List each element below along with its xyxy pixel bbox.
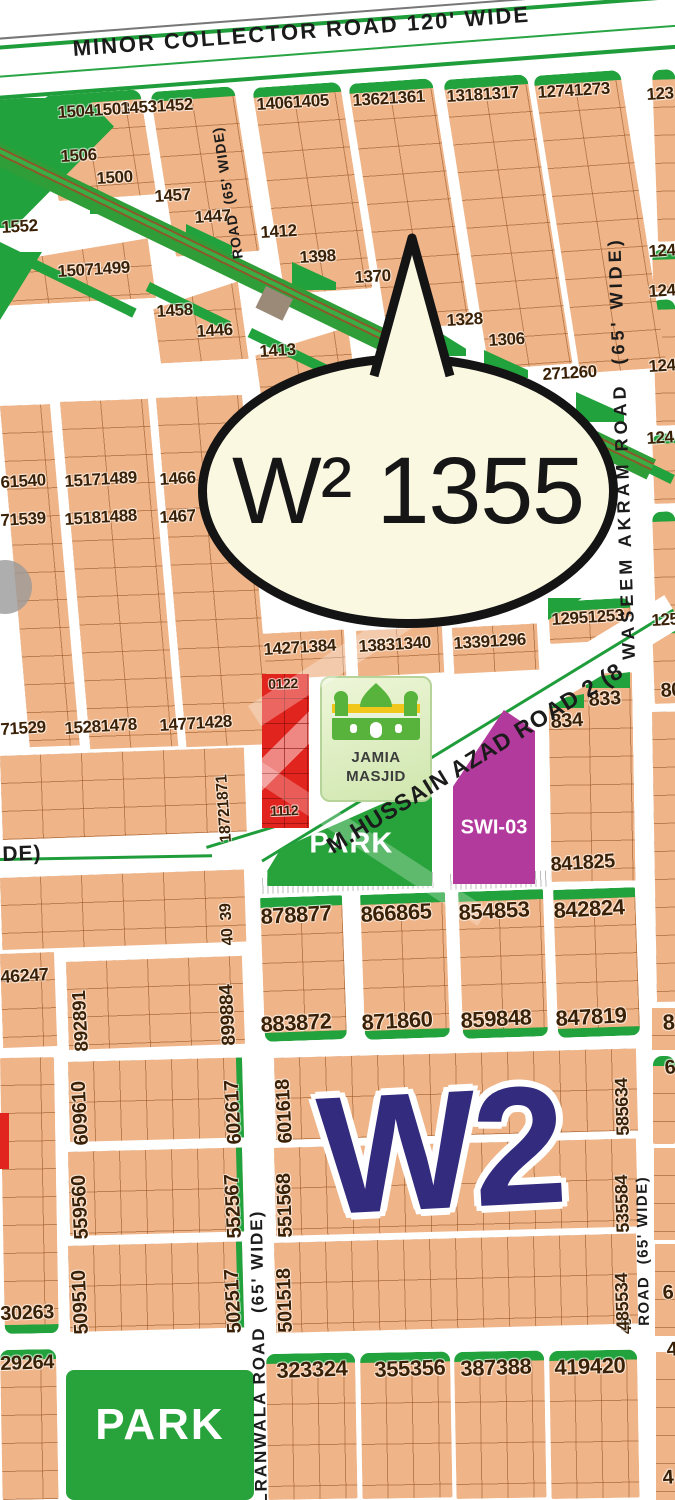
plot-number-label: 125 <box>651 610 675 629</box>
plot-number-label: 601618 <box>273 1079 296 1144</box>
plot-number-label: 1466 <box>159 469 196 488</box>
gujranwala-road-label: LRANWALA ROAD (65' WIDE) <box>248 1210 270 1500</box>
plot-number-label: 1413 <box>259 341 296 360</box>
plot-number-label: 124 <box>648 356 675 375</box>
plot-number-label: 502517 <box>222 1269 245 1334</box>
plot-number-label: 4 <box>662 1467 674 1488</box>
plot-number-label: 13621361 <box>352 88 425 109</box>
plot-number-label: 1500 <box>96 168 133 187</box>
plot-number-label: 585634 <box>612 1078 632 1136</box>
red-strip-partial <box>0 1113 9 1169</box>
society-map: MINOR COLLECTOR ROAD 120' WIDE ROAD (65'… <box>0 0 675 1500</box>
plot-number-label: 0122 <box>268 676 298 691</box>
mosque-icon <box>326 682 426 744</box>
plot-number-label: 552567 <box>222 1174 245 1239</box>
plot-number-label: 535584 <box>612 1175 632 1233</box>
plot-number-label: 15181488 <box>64 507 137 528</box>
plot-number-label: 323324 <box>276 1358 348 1382</box>
plot-number-label: 1112 <box>270 803 298 818</box>
road-wide-partial-label: DE) <box>2 843 42 865</box>
plot-number-label: 871860 <box>361 1008 433 1034</box>
plot-number-label: 602617 <box>222 1080 245 1145</box>
plot-number-label: 13831340 <box>358 634 431 655</box>
plot-number-label: 12741273 <box>537 80 610 101</box>
plot-number-label: 61540 <box>0 471 46 491</box>
park-bottom-label: PARK <box>95 1400 224 1450</box>
plot-number-label: 6 <box>664 1057 675 1078</box>
plot-number-label: 854853 <box>458 898 530 924</box>
plot-number-label: 899884 <box>217 984 239 1046</box>
plot-number-label: 123 <box>646 84 674 103</box>
plot-number-label: 355356 <box>374 1357 446 1381</box>
plot-number-label: 46247 <box>0 965 49 986</box>
plot-number-label: 501518 <box>274 1268 296 1333</box>
plot-number-label: 883872 <box>260 1010 332 1036</box>
plot-number-label: 80 <box>660 680 675 701</box>
plot-number-label: 71529 <box>0 718 46 738</box>
plot-number-label: 8 <box>662 1011 675 1034</box>
plot-number-label: 866865 <box>360 900 432 926</box>
plot-number-label: 14061405 <box>256 92 329 113</box>
plot-number-label: 509510 <box>69 1270 92 1335</box>
plot-number-label: 1446 <box>196 321 233 340</box>
plot-block <box>654 1148 675 1240</box>
plot-number-label: 1306 <box>488 330 525 349</box>
plot-block <box>68 1057 244 1142</box>
plot-number-label: 551568 <box>274 1173 296 1238</box>
plot-number-label: 559560 <box>69 1175 92 1240</box>
plot-number-label: 15281478 <box>64 716 137 737</box>
plot-number-label: 485534 <box>612 1273 632 1331</box>
plot-number-label: 4 <box>666 1339 675 1360</box>
plot-number-label: 13181317 <box>446 84 519 105</box>
plot-number-label: 847819 <box>555 1004 627 1030</box>
sector-w2-logo: W2 <box>314 1060 566 1241</box>
plot-number-label: 841825 <box>550 851 615 875</box>
plot-number-label: 14771428 <box>159 713 232 734</box>
plot-number-label: 15171489 <box>64 469 137 490</box>
plot-number-label: 609610 <box>69 1081 92 1146</box>
plot-number-label: 124 <box>648 281 675 300</box>
plot-number-label: 13391296 <box>453 631 526 652</box>
plot-number-label: 1506 <box>60 146 97 165</box>
plot-number-label: 1398 <box>299 247 336 266</box>
plot-callout-label: W² 1355 <box>232 437 584 546</box>
bubble-tail <box>352 228 468 378</box>
plot-block <box>68 1147 244 1236</box>
plot-number-label: 419420 <box>554 1355 626 1379</box>
plot-block <box>68 1241 244 1332</box>
plot-number-label: 15071499 <box>57 259 130 280</box>
plot-number-label: 124 <box>646 428 674 447</box>
swi-03-label: SWI-03 <box>461 817 528 840</box>
masjid-label-line1: JAMIA <box>322 749 430 768</box>
plot-number-label: 1412 <box>260 222 297 241</box>
plot-number-label: 29264 <box>0 1352 54 1374</box>
plot-number-label: 124 <box>648 241 675 260</box>
plot-number-label: 842824 <box>553 896 625 922</box>
plot-number-label: 271260 <box>542 363 597 383</box>
plot-number-label: 387388 <box>460 1356 532 1380</box>
plot-number-label: 12951253 <box>551 607 624 628</box>
plot-block <box>0 1057 59 1334</box>
plot-number-label: 1552 <box>1 217 38 236</box>
plot-number-label: 878877 <box>260 902 332 928</box>
road-65-bottom-label: ROAD (65' WIDE) <box>634 1176 652 1326</box>
plot-block <box>0 869 246 949</box>
park-bottom-block: PARK <box>66 1370 254 1500</box>
plot-number-label: 1467 <box>159 507 196 526</box>
plot-number-label: 14531452 <box>120 96 193 117</box>
plot-block <box>652 712 675 1002</box>
plot-number-label: 892891 <box>70 990 92 1052</box>
plot-number-label: 71539 <box>0 509 46 529</box>
plot-callout-bubble: W² 1355 <box>198 354 618 628</box>
plot-number-label: 859848 <box>460 1006 532 1032</box>
plot-block <box>0 747 247 839</box>
plot-number-label: 30263 <box>0 1302 54 1324</box>
plot-number-label: 40 39 <box>218 903 237 946</box>
plot-number-label: 14271384 <box>263 637 336 658</box>
plot-number-label: 1458 <box>156 301 193 320</box>
plot-number-label: 1457 <box>154 186 191 205</box>
plot-number-label: 6 <box>662 1282 674 1303</box>
